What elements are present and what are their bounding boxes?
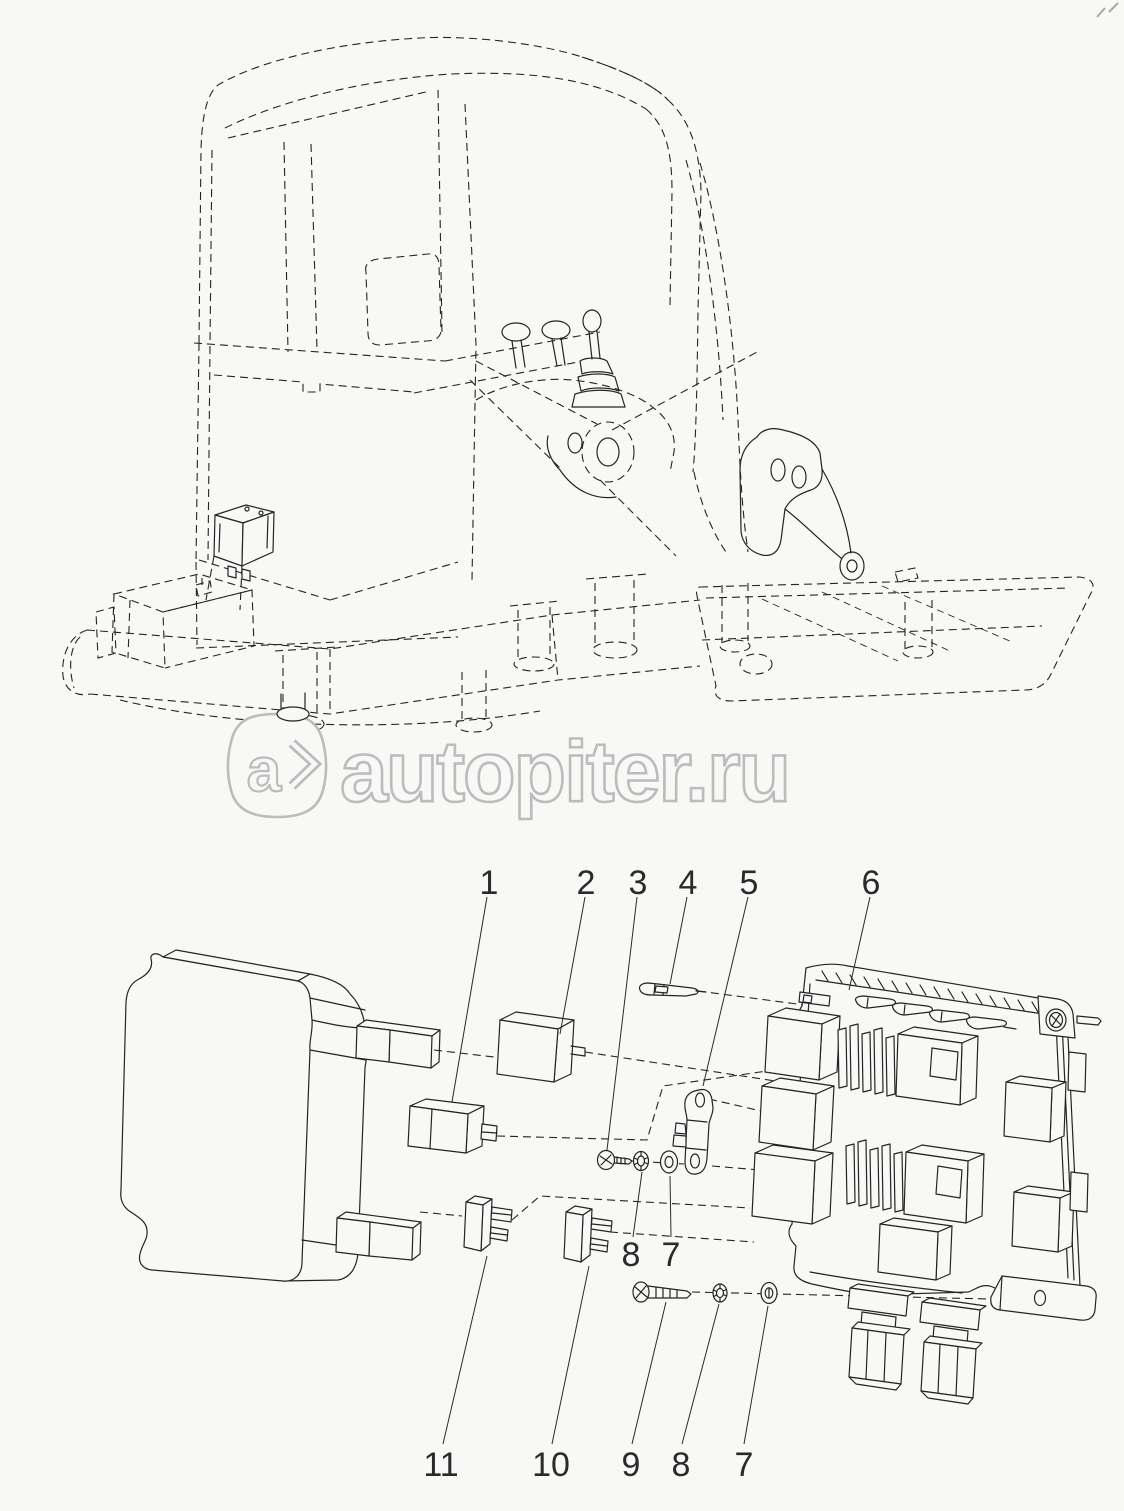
relay-r3 [752, 1145, 833, 1224]
washer-part-7-mid [661, 1151, 678, 1173]
installed-electrical-box [206, 505, 274, 610]
relay-right-mid [1004, 1076, 1066, 1142]
seat-outline [366, 254, 441, 345]
callout-label-3: 3 [629, 864, 648, 902]
parts-diagram-page: a autopiter.ru [0, 0, 1124, 1511]
fuse-link-part-4 [639, 983, 706, 996]
battery-box [96, 574, 254, 668]
corner-mark [1097, 3, 1118, 17]
cab-outline [194, 37, 748, 648]
watermark-logo-letter: a [247, 736, 282, 805]
relay-lower-middle [878, 1218, 952, 1280]
callout-label-2: 2 [577, 864, 596, 902]
star-washer-part-8-mid [634, 1152, 649, 1171]
box-cover-part [121, 950, 440, 1281]
cable-gland-right [920, 1298, 986, 1404]
cable-gland-left [848, 1284, 914, 1390]
callout-label-7-mid: 7 [662, 1236, 681, 1274]
relay-r2 [759, 1078, 834, 1150]
boom-mount [470, 352, 757, 556]
electrical-box-part-6 [752, 964, 1101, 1404]
callout-label-7-bottom: 7 [735, 1446, 754, 1484]
post-overlay [277, 693, 309, 721]
relay-part-1 [408, 1099, 497, 1153]
callout-label-4: 4 [679, 864, 698, 902]
machine-overview-drawing [63, 37, 1093, 733]
callout-label-8-bottom: 8 [672, 1446, 691, 1484]
fuse-part-11 [464, 1196, 512, 1251]
blade-platform [696, 568, 1093, 701]
relay-part-2 [497, 1012, 585, 1082]
callout-label-9: 9 [622, 1446, 641, 1484]
callout-label-10: 10 [532, 1446, 570, 1484]
mount-ear-top [1038, 996, 1101, 1038]
control-levers [502, 310, 625, 407]
callout-label-1: 1 [480, 864, 499, 902]
exploded-view [121, 950, 1101, 1404]
mount-plate [740, 429, 864, 580]
callout-label-11: 11 [423, 1446, 458, 1484]
frame-rails [63, 560, 700, 725]
fuse-part-10 [564, 1206, 612, 1262]
screw-part-9 [633, 1282, 691, 1302]
relay-r1 [765, 1008, 840, 1080]
washer-part-7-bottom [761, 1283, 777, 1304]
bracket-part-5 [673, 1089, 713, 1174]
callout-label-8-mid: 8 [622, 1236, 641, 1274]
star-washer-part-8-bottom [713, 1284, 727, 1302]
watermark-brand-text: autopiter.ru [340, 724, 789, 820]
screw-part-3 [598, 1151, 633, 1170]
parts-diagram: a autopiter.ru [0, 0, 1124, 1511]
callout-label-6: 6 [862, 864, 881, 902]
callout-label-5: 5 [740, 864, 759, 902]
relay-right-lower [1012, 1186, 1074, 1252]
